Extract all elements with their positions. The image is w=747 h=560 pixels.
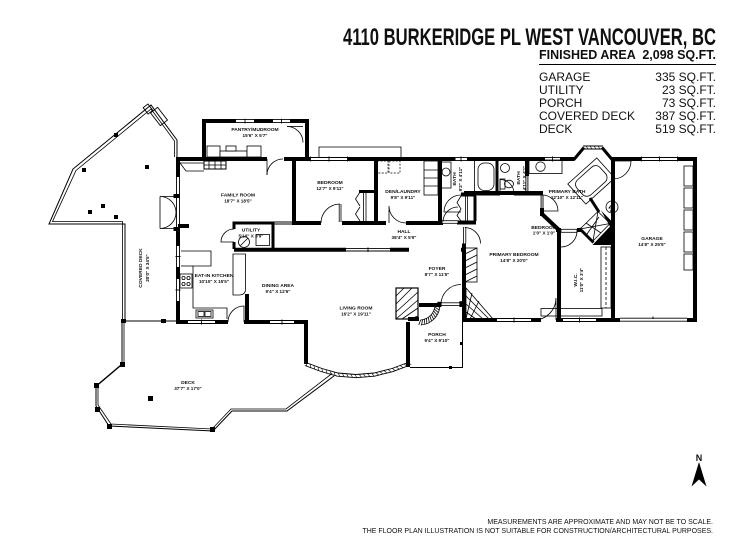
svg-text:THE FLOOR PLAN ILLUSTRATION IS: THE FLOOR PLAN ILLUSTRATION IS NOT SUITA… <box>362 528 713 535</box>
svg-text:38'4" X 5'9": 38'4" X 5'9" <box>392 235 417 240</box>
svg-text:MEASUREMENTS ARE APPROXIMATE A: MEASUREMENTS ARE APPROXIMATE AND MAY NOT… <box>487 519 713 526</box>
svg-text:335 SQ.FT.: 335 SQ.FT. <box>655 70 716 84</box>
svg-text:COVERED DECK: COVERED DECK <box>138 248 144 288</box>
svg-text:23 SQ.FT.: 23 SQ.FT. <box>662 83 716 97</box>
svg-text:2,098 SQ.FT.: 2,098 SQ.FT. <box>642 48 716 62</box>
svg-text:9'4" X 12'6": 9'4" X 12'6" <box>266 289 291 294</box>
svg-text:387 SQ.FT.: 387 SQ.FT. <box>655 109 716 123</box>
svg-text:12'7" X 9'11": 12'7" X 9'11" <box>316 186 343 191</box>
svg-text:18'7" X 18'5": 18'7" X 18'5" <box>224 199 252 204</box>
svg-text:UTILITY: UTILITY <box>539 83 584 97</box>
svg-text:PORCH: PORCH <box>539 96 582 110</box>
svg-text:5'10" X 3'9": 5'10" X 3'9" <box>239 234 264 239</box>
svg-text:DECK: DECK <box>539 122 572 136</box>
svg-text:9'2" X 4'11": 9'2" X 4'11" <box>458 167 463 192</box>
svg-text:9'4" X 9'10": 9'4" X 9'10" <box>425 338 450 343</box>
svg-text:20'0" X 34'5": 20'0" X 34'5" <box>145 254 150 282</box>
svg-text:8'7" X 11'5": 8'7" X 11'5" <box>425 272 450 277</box>
svg-text:COVERED DECK: COVERED DECK <box>539 109 635 123</box>
svg-text:519 SQ.FT.: 519 SQ.FT. <box>655 122 716 136</box>
svg-text:N: N <box>696 453 703 463</box>
svg-text:14'8" X 20'0": 14'8" X 20'0" <box>500 258 528 263</box>
svg-text:9'8" X 9'11": 9'8" X 9'11" <box>391 195 416 200</box>
svg-text:14'8" X 25'5": 14'8" X 25'5" <box>638 242 666 247</box>
svg-text:37'7" X 17'0": 37'7" X 17'0" <box>174 386 202 391</box>
svg-text:FINISHED AREA: FINISHED AREA <box>539 48 636 62</box>
svg-text:GARAGE: GARAGE <box>539 70 590 84</box>
svg-text:10'10" X 15'5": 10'10" X 15'5" <box>199 279 229 284</box>
svg-text:4110 BURKERIDGE PL WEST VANCOU: 4110 BURKERIDGE PL WEST VANCOUVER, BC <box>343 24 716 51</box>
svg-text:11'0" X 3'4": 11'0" X 3'4" <box>579 268 584 293</box>
svg-text:1'0" X 1'0": 1'0" X 1'0" <box>533 231 555 236</box>
svg-text:16'2" X 19'11": 16'2" X 19'11" <box>341 312 371 317</box>
svg-text:15'6" X 5'7": 15'6" X 5'7" <box>243 133 268 138</box>
svg-text:73 SQ.FT.: 73 SQ.FT. <box>662 96 716 110</box>
